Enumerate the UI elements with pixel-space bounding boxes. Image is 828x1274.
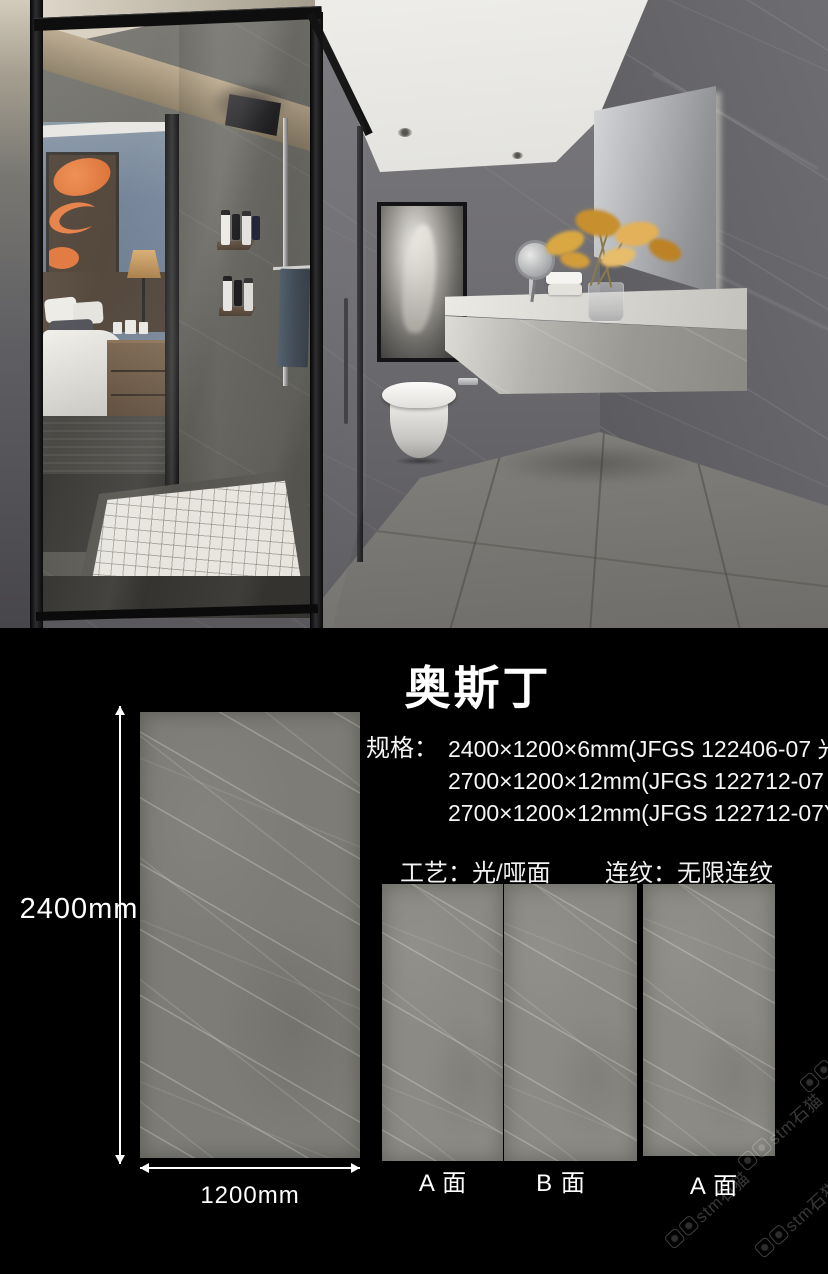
glass-shower-view (43, 14, 310, 618)
spec-line-1: 2400×1200×6mm(JFGS 122406-07 光) (448, 733, 828, 765)
pattern-label: 连纹： (605, 860, 677, 887)
recessed-light-icon (512, 152, 523, 159)
watermark: stm石猫 (795, 1008, 828, 1096)
spec-block: 规格： 2400×1200×6mm(JFGS 122406-07 光) 2700… (366, 733, 828, 829)
bw-artwork-figure (398, 223, 440, 335)
product-title: 奥斯丁 (405, 652, 552, 718)
width-arrow (140, 1161, 360, 1175)
craft-line: 工艺：光/哑面 (400, 853, 551, 888)
arrow-shaft (140, 1167, 360, 1169)
product-sheet: 奥斯丁 规格： 2400×1200×6mm(JFGS 122406-07 光) … (0, 0, 828, 1274)
craft-label: 工艺： (400, 860, 472, 887)
bathroom-photo (0, 0, 828, 628)
spec-label: 规格： (366, 733, 438, 829)
face-sample-a2 (643, 884, 775, 1156)
face-sample-b (504, 884, 637, 1161)
flush-plate (458, 378, 478, 385)
face-label-a1: A 面 (419, 1163, 467, 1198)
arrow-down-icon (115, 1155, 125, 1164)
width-dimension: 1200mm (185, 1182, 315, 1210)
watermark: stm石猫 (750, 1173, 828, 1261)
arrow-left-icon (140, 1163, 149, 1173)
pattern-value: 无限连纹 (677, 860, 773, 887)
glass-vase (588, 282, 624, 322)
face-sample-a1 (382, 884, 503, 1161)
watermark-text: stm石猫 (778, 1173, 828, 1236)
pattern-line: 连纹：无限连纹 (605, 853, 773, 888)
glass-frame-right (310, 12, 323, 628)
spec-line-3: 2700×1200×12mm(JFGS 122712-07Y 哑) (448, 797, 828, 829)
craft-value: 光/哑面 (472, 860, 551, 887)
slab-sample-large (140, 712, 360, 1158)
spec-line-2: 2700×1200×12mm(JFGS 122712-07 光) (448, 765, 828, 797)
face-label-b: B 面 (536, 1163, 586, 1198)
glass-reflection (43, 14, 310, 618)
arrow-shaft (119, 706, 121, 1164)
recessed-light-icon (398, 128, 412, 137)
height-arrow (113, 706, 127, 1164)
folded-towel (546, 272, 582, 284)
toilet-lid (382, 382, 456, 408)
arrow-right-icon (351, 1163, 360, 1173)
arrow-up-icon (115, 706, 125, 715)
spec-lines: 2400×1200×6mm(JFGS 122406-07 光) 2700×120… (448, 733, 828, 829)
floor-grout-line (332, 525, 828, 588)
glass-frame-left (30, 0, 43, 628)
foreground-wall-edge (0, 0, 30, 628)
folded-towel (548, 284, 582, 295)
height-dimension: 2400mm (14, 893, 144, 926)
